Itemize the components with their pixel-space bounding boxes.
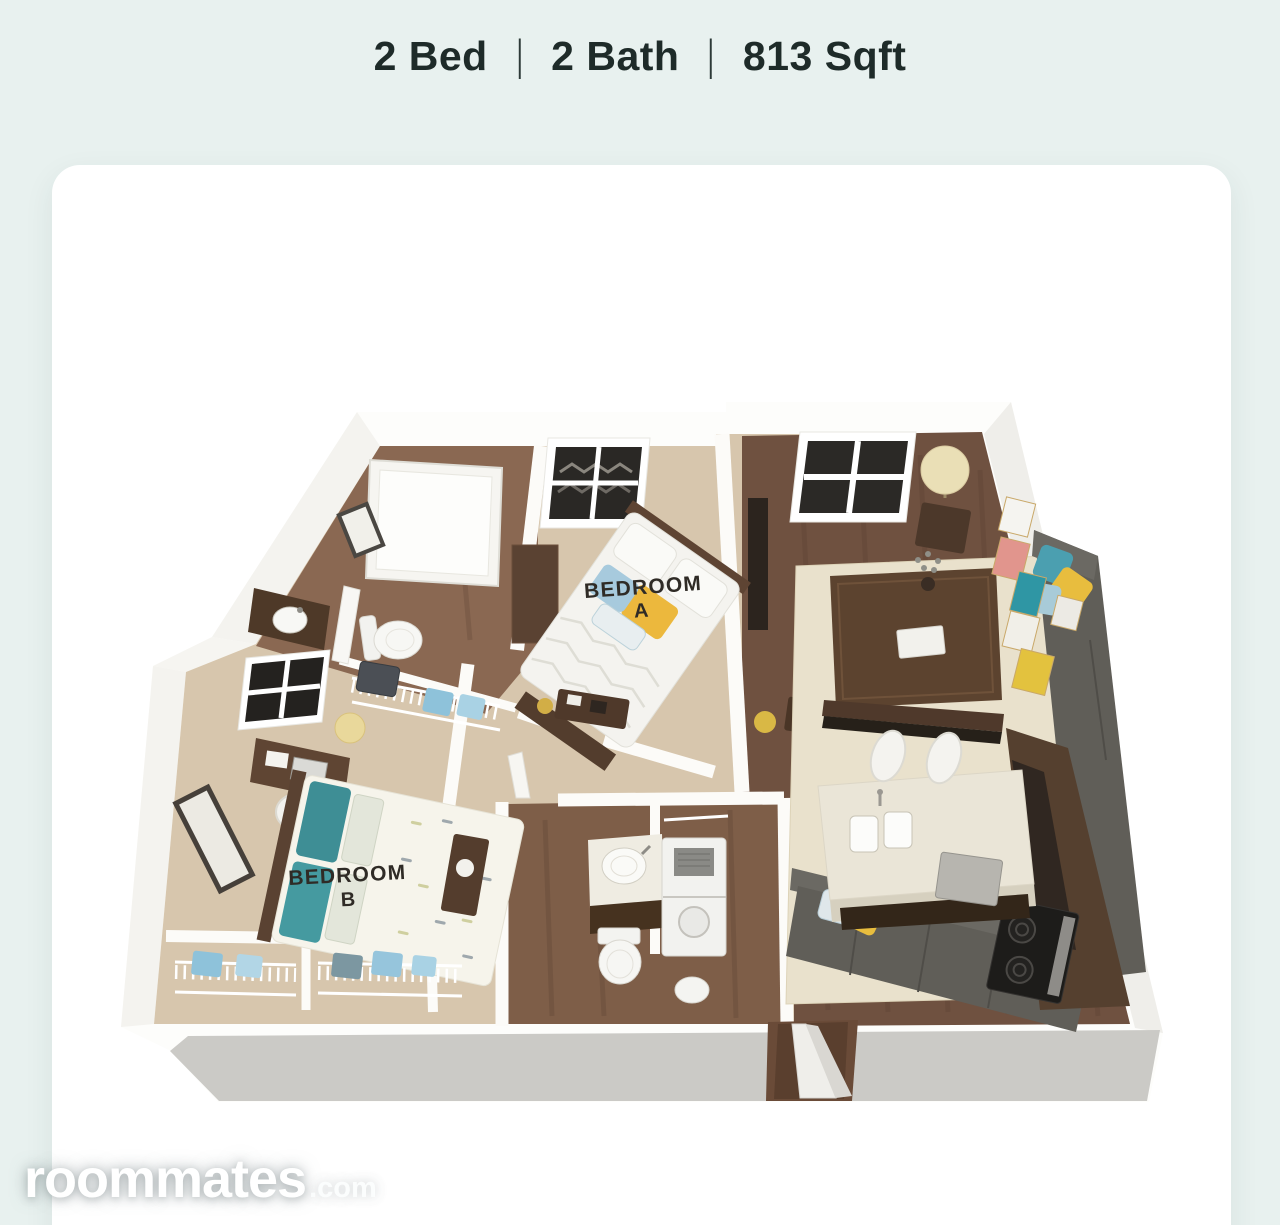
dishwasher [935,852,1003,906]
front-wall-face [170,1030,1160,1101]
storage-bin [191,950,223,977]
book [897,626,946,659]
watermark-brand: roommates [24,1148,306,1210]
vase [537,698,553,714]
desk-lamp [335,713,365,743]
floor-plan-image: BEDROOM A BEDROOM B [0,0,1280,1225]
storage-bin [411,955,437,977]
tv-panel [748,498,768,630]
watermark: roommates .com [24,1148,377,1210]
storage-bin [371,950,403,977]
floorplan-page: 2 Bed | 2 Bath | 813 Sqft [0,0,1280,1225]
bedroom-a-letter: A [633,600,650,623]
entry-door [766,1020,858,1101]
island [818,770,1036,930]
vase [921,577,935,591]
hall-lamp [754,711,776,733]
storage-bin [235,954,263,979]
lamp-shade [921,446,969,494]
window-living [790,432,916,522]
storage-bin [331,952,363,979]
toilet-small [675,977,709,1003]
watermark-suffix: .com [309,1172,377,1205]
storage-basket [356,661,401,697]
vanity-sink [588,834,664,934]
toilet [598,928,641,984]
window-bedroom-b [238,650,330,730]
bedroom-b-letter: B [340,889,357,912]
